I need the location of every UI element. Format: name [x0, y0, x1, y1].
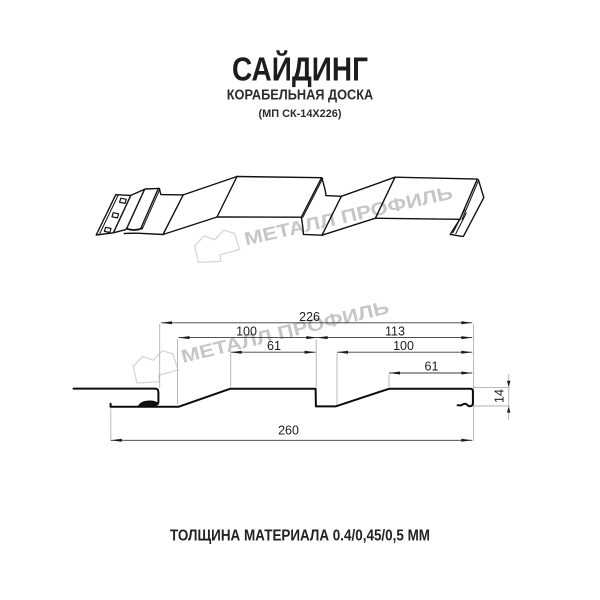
svg-text:ТОЛЩИНА МАТЕРИАЛА 0.4/0,45/0,5: ТОЛЩИНА МАТЕРИАЛА 0.4/0,45/0,5 ММ [170, 528, 430, 545]
svg-text:(МП СК-14Х226): (МП СК-14Х226) [259, 108, 342, 120]
svg-text:61: 61 [267, 339, 281, 353]
svg-text:61: 61 [425, 359, 439, 373]
svg-text:100: 100 [393, 339, 414, 353]
svg-text:113: 113 [385, 325, 405, 339]
svg-text:САЙДИНГ: САЙДИНГ [232, 50, 368, 88]
svg-text:226: 226 [299, 310, 320, 324]
svg-text:14: 14 [493, 389, 507, 403]
svg-text:260: 260 [278, 424, 299, 438]
svg-text:КОРАБЕЛЬНАЯ ДОСКА: КОРАБЕЛЬНАЯ ДОСКА [227, 88, 374, 104]
svg-text:100: 100 [236, 325, 257, 339]
